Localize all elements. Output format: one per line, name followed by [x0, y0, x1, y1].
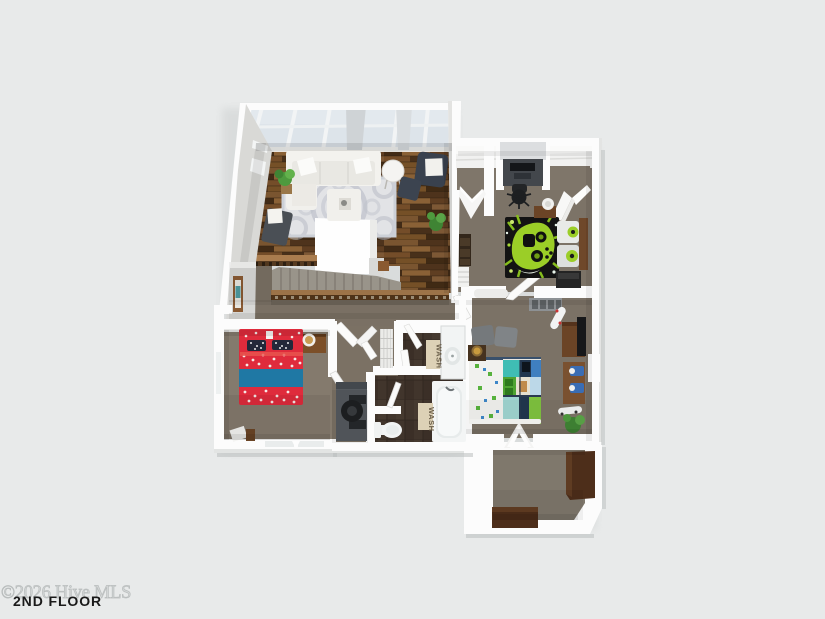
svg-text:2ND FLOOR: 2ND FLOOR — [13, 593, 102, 609]
svg-text:WASH: WASH — [427, 407, 436, 432]
svg-text:WASH: WASH — [435, 344, 444, 369]
